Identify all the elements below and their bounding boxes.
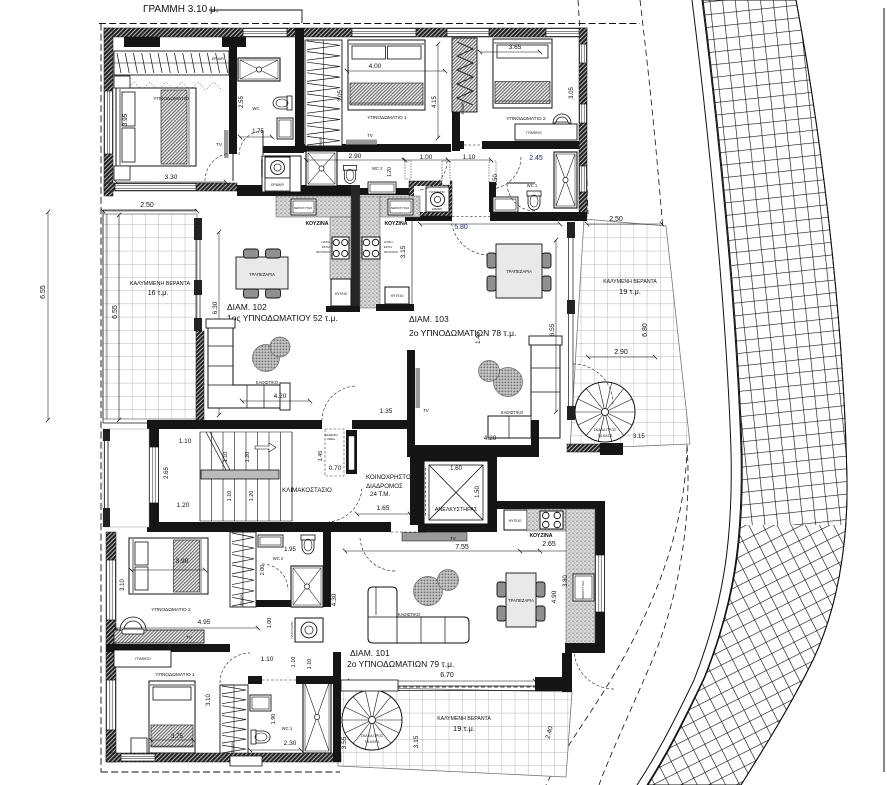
- svg-text:ΨΥΓΕΙΟ: ΨΥΓΕΙΟ: [509, 519, 522, 523]
- svg-text:19 τ.μ.: 19 τ.μ.: [453, 724, 475, 733]
- svg-text:ΥΠΝΟΔΩΜΑΤΙΟ 2: ΥΠΝΟΔΩΜΑΤΙΟ 2: [506, 116, 546, 122]
- svg-text:1.10: 1.10: [227, 491, 233, 502]
- svg-text:1.20: 1.20: [387, 167, 393, 177]
- svg-text:0.70: 0.70: [329, 465, 342, 472]
- svg-text:ΕΡΜΑΡΙ: ΕΡΜΑΡΙ: [432, 207, 442, 211]
- svg-text:1.10: 1.10: [261, 656, 274, 663]
- svg-text:ΝΕΡΟΧΥΤΗΣ: ΝΕΡΟΧΥΤΗΣ: [581, 581, 585, 600]
- svg-text:2.55: 2.55: [239, 96, 245, 108]
- svg-text:WC 1: WC 1: [527, 183, 538, 188]
- svg-text:TV: TV: [216, 142, 222, 147]
- svg-text:ΥΠΝΟΔΩΜΑΤΙΟ 1: ΥΠΝΟΔΩΜΑΤΙΟ 1: [155, 672, 195, 678]
- svg-text:ΓΡΑΜΜΗ 3.10 μ.: ΓΡΑΜΜΗ 3.10 μ.: [143, 4, 219, 15]
- svg-text:ΔΙΑΜ. 102: ΔΙΑΜ. 102: [227, 302, 267, 312]
- svg-text:ΕΡΜΑΡΙ: ΕΡΜΑΡΙ: [461, 102, 465, 115]
- svg-text:2.00: 2.00: [260, 565, 266, 576]
- svg-text:ΓΡΑΦΕΙΟ: ΓΡΑΦΕΙΟ: [526, 131, 542, 135]
- svg-text:4.00: 4.00: [369, 63, 382, 70]
- svg-text:3.05: 3.05: [569, 87, 575, 99]
- svg-text:1.45: 1.45: [318, 451, 324, 462]
- svg-text:WC 2: WC 2: [372, 166, 383, 171]
- svg-text:ΨΥΓΕΙΟ: ΨΥΓΕΙΟ: [335, 292, 348, 296]
- svg-text:ΑΜΕΑ: ΑΜΕΑ: [327, 437, 335, 441]
- svg-text:1ος ΥΠΝΟΔΩΜΑΤΙΟΥ 52 τ.μ.: 1ος ΥΠΝΟΔΩΜΑΤΙΟΥ 52 τ.μ.: [227, 313, 338, 323]
- svg-text:TV: TV: [450, 536, 456, 541]
- svg-text:ΠΛΥΝΤΗΡΙΟ: ΠΛΥΝΤΗΡΙΟ: [290, 621, 294, 639]
- svg-text:ΠΛΥΝΤΗΡΙΟ: ΠΛΥΝΤΗΡΙΟ: [430, 190, 445, 194]
- svg-text:6.55: 6.55: [40, 285, 47, 299]
- svg-text:3.30: 3.30: [165, 174, 178, 181]
- svg-text:ΤΑ ΚΑΤΩ: ΤΑ ΚΑΤΩ: [365, 740, 380, 744]
- svg-text:ΚΟΥΖΙΝΑ: ΚΟΥΖΙΝΑ: [385, 221, 408, 227]
- svg-text:ΚΑΘΙΣΤΙΚΟ: ΚΑΘΙΣΤΙΚΟ: [256, 380, 279, 385]
- svg-text:ΕΡΜΑΡΙ: ΕΡΜΑΡΙ: [240, 594, 244, 606]
- svg-text:ΤΡΑΠΕΖΑΡΙΑ: ΤΡΑΠΕΖΑΡΙΑ: [506, 269, 532, 274]
- svg-text:2ο ΥΠΝΟΔΩΜΑΤΙΩΝ 78 τ.μ.: 2ο ΥΠΝΟΔΩΜΑΤΙΩΝ 78 τ.μ.: [409, 328, 516, 338]
- svg-text:1.10: 1.10: [307, 659, 313, 670]
- svg-text:3.15: 3.15: [413, 735, 420, 748]
- svg-text:ΗΛ/ΚΗ: ΗΛ/ΚΗ: [321, 240, 330, 244]
- svg-text:ΝΕΡΟΧΥΤΗΣ: ΝΕΡΟΧΥΤΗΣ: [294, 206, 313, 210]
- svg-text:6.55: 6.55: [549, 323, 556, 336]
- svg-text:4.20: 4.20: [274, 393, 287, 400]
- svg-text:ΥΠΝΟΔΩΜΑΤΙΟ 2: ΥΠΝΟΔΩΜΑΤΙΟ 2: [151, 607, 191, 613]
- svg-text:1.65: 1.65: [377, 505, 390, 512]
- svg-text:ΔΙΑΔΡΟΜΟΣ: ΔΙΑΔΡΟΜΟΣ: [366, 483, 403, 490]
- svg-text:1.00: 1.00: [420, 154, 433, 161]
- svg-text:3.10: 3.10: [120, 579, 126, 591]
- svg-text:6.30: 6.30: [212, 301, 219, 314]
- svg-text:ΣΚΑΛΑ ΠΡΟΣ: ΣΚΑΛΑ ΠΡΟΣ: [594, 428, 617, 432]
- svg-text:2.50: 2.50: [609, 216, 623, 223]
- svg-text:4.20: 4.20: [484, 435, 497, 442]
- svg-text:1.00: 1.00: [267, 618, 273, 629]
- svg-text:3.10: 3.10: [206, 694, 212, 706]
- svg-text:ΥΠΝΟΔΩΜΑΤΙΟ: ΥΠΝΟΔΩΜΑΤΙΟ: [153, 96, 189, 102]
- svg-text:2.90: 2.90: [614, 349, 628, 356]
- svg-text:4.95: 4.95: [198, 619, 211, 626]
- svg-text:ΝΕΡΟΧΥΤΗΣ: ΝΕΡΟΧΥΤΗΣ: [391, 206, 410, 210]
- svg-text:ΕΣΤΙΑ: ΕΣΤΙΑ: [322, 245, 330, 249]
- svg-text:ΑΝΕΛΚΥΣΤΗΡΑΣ: ΑΝΕΛΚΥΣΤΗΡΑΣ: [435, 507, 478, 513]
- svg-text:ΚΑΛΥΜΜΕΝΗ ΒΕΡΑΝΤΑ: ΚΑΛΥΜΜΕΝΗ ΒΕΡΑΝΤΑ: [130, 281, 191, 287]
- svg-text:WC 2: WC 2: [273, 556, 284, 561]
- svg-text:1.20: 1.20: [177, 502, 190, 509]
- svg-text:ΚΟΙΝΟΧΡΗΣΤΟΣ: ΚΟΙΝΟΧΡΗΣΤΟΣ: [366, 474, 415, 481]
- svg-text:7.55: 7.55: [455, 544, 469, 551]
- svg-text:2.30: 2.30: [284, 740, 297, 747]
- svg-text:24 Τ.Μ.: 24 Τ.Μ.: [370, 491, 390, 498]
- svg-text:1.50: 1.50: [475, 486, 481, 498]
- svg-text:ΚΟΥΖΙΝΑ: ΚΟΥΖΙΝΑ: [306, 221, 329, 227]
- svg-text:1.10: 1.10: [223, 452, 229, 463]
- svg-text:4.90: 4.90: [551, 590, 558, 603]
- svg-text:4.15: 4.15: [432, 96, 438, 108]
- svg-text:ΦΟΥΡΝΟΣ: ΦΟΥΡΝΟΣ: [384, 250, 398, 254]
- svg-text:1.90: 1.90: [271, 714, 277, 725]
- svg-text:ΗΛ/ΚΗ: ΗΛ/ΚΗ: [384, 240, 393, 244]
- svg-text:ΥΠΝΟΔΩΜΑΤΙΟ 1: ΥΠΝΟΔΩΜΑΤΙΟ 1: [367, 115, 407, 121]
- svg-text:ΤΡΑΠΕΖΑΡΙΑ: ΤΡΑΠΕΖΑΡΙΑ: [508, 598, 534, 603]
- svg-text:WC: WC: [253, 106, 260, 111]
- svg-text:ΚΑΘΙΣΤΙΚΟ: ΚΑΘΙΣΤΙΚΟ: [501, 410, 524, 415]
- svg-text:16 τ.μ.: 16 τ.μ.: [148, 290, 168, 297]
- svg-text:2ο ΥΠΝΟΔΩΜΑΤΙΩΝ 79 τ.μ.: 2ο ΥΠΝΟΔΩΜΑΤΙΩΝ 79 τ.μ.: [347, 659, 454, 669]
- svg-text:ΓΡΑΦΕΙΟ: ΓΡΑΦΕΙΟ: [135, 657, 151, 661]
- svg-text:1.60: 1.60: [450, 466, 462, 472]
- svg-text:ΕΡΜΑΡΙ: ΕΡΜΑΡΙ: [319, 137, 323, 149]
- svg-text:TV: TV: [367, 133, 373, 138]
- svg-text:ΤΡΑΠΕΖΑΡΙΑ: ΤΡΑΠΕΖΑΡΙΑ: [249, 272, 275, 277]
- svg-text:3.75: 3.75: [171, 734, 183, 740]
- svg-text:ΦΟΥΡΝΟΣ: ΦΟΥΡΝΟΣ: [316, 250, 330, 254]
- svg-text:2.65: 2.65: [164, 467, 170, 479]
- svg-text:1.95: 1.95: [284, 547, 296, 553]
- svg-text:WC 1: WC 1: [282, 726, 293, 731]
- svg-text:2.65: 2.65: [542, 541, 556, 548]
- svg-text:1.10: 1.10: [463, 154, 476, 161]
- svg-text:ΚΑΛΥΜΕΝΗ ΒΕΡΑΝΤΑ: ΚΑΛΥΜΕΝΗ ΒΕΡΑΝΤΑ: [603, 279, 657, 285]
- svg-text:1.10: 1.10: [179, 438, 192, 445]
- svg-text:1.10: 1.10: [291, 657, 297, 668]
- svg-text:1.20: 1.20: [245, 452, 251, 463]
- svg-text:3.15: 3.15: [633, 434, 645, 440]
- svg-text:2.50: 2.50: [140, 202, 154, 209]
- svg-text:2.90: 2.90: [349, 153, 362, 160]
- svg-text:ΕΡΜΑΡΙ: ΕΡΜΑΡΙ: [231, 742, 235, 754]
- svg-text:4.30: 4.30: [331, 593, 338, 606]
- svg-text:3.15: 3.15: [400, 245, 407, 258]
- svg-text:3.65: 3.65: [509, 44, 522, 51]
- svg-text:ΨΥΓΕΙΟ: ΨΥΓΕΙΟ: [391, 294, 404, 298]
- svg-text:3.90: 3.90: [176, 558, 189, 565]
- svg-text:5.80: 5.80: [454, 224, 468, 231]
- svg-text:1.35: 1.35: [380, 408, 393, 415]
- svg-text:ΕΡΜΑΡΙ: ΕΡΜΑΡΙ: [271, 183, 284, 187]
- svg-text:ΔΙΑΜ. 103: ΔΙΑΜ. 103: [409, 314, 449, 324]
- svg-text:ΚΑΘΙΣΤΙΚΟ: ΚΑΘΙΣΤΙΚΟ: [398, 612, 421, 617]
- svg-text:ΠΛΥΝΤΗΡΙΟ: ΠΛΥΝΤΗΡΙΟ: [260, 159, 264, 177]
- svg-text:ΚΑΛΥΜΕΝΗ ΒΕΡΑΝΤΑ: ΚΑΛΥΜΕΝΗ ΒΕΡΑΝΤΑ: [437, 716, 491, 722]
- svg-text:ΤΑ ΚΑΤΩ: ΤΑ ΚΑΤΩ: [598, 434, 613, 438]
- svg-text:ΕΡΜΑΡΙ: ΕΡΜΑΡΙ: [212, 57, 224, 61]
- svg-text:1.20: 1.20: [249, 491, 255, 502]
- svg-text:ΔΙΑΜ. 101: ΔΙΑΜ. 101: [350, 648, 390, 658]
- svg-text:6.70: 6.70: [440, 672, 454, 679]
- svg-text:ΕΣΤΙΑ: ΕΣΤΙΑ: [384, 245, 392, 249]
- svg-text:3.55: 3.55: [341, 736, 348, 749]
- svg-text:TV: TV: [423, 408, 429, 413]
- svg-text:3.80: 3.80: [563, 575, 569, 587]
- svg-text:3.95: 3.95: [122, 113, 129, 126]
- svg-text:6.55: 6.55: [112, 305, 119, 319]
- svg-text:1.40: 1.40: [476, 332, 482, 344]
- svg-text:6.80: 6.80: [642, 323, 649, 337]
- svg-text:3.05: 3.05: [338, 90, 344, 102]
- svg-text:ΚΛΙΜΑΚΟΣΤΑΣΙΟ: ΚΛΙΜΑΚΟΣΤΑΣΙΟ: [282, 487, 332, 494]
- svg-text:ΚΟΥΖΙΝΑ: ΚΟΥΖΙΝΑ: [530, 533, 553, 539]
- svg-text:2.45: 2.45: [529, 155, 543, 162]
- svg-text:ΣΚΑΛΑ ΠΡΟΣ: ΣΚΑΛΑ ΠΡΟΣ: [361, 734, 384, 738]
- svg-text:19 τ.μ.: 19 τ.μ.: [619, 287, 641, 296]
- svg-text:TV: TV: [186, 635, 192, 640]
